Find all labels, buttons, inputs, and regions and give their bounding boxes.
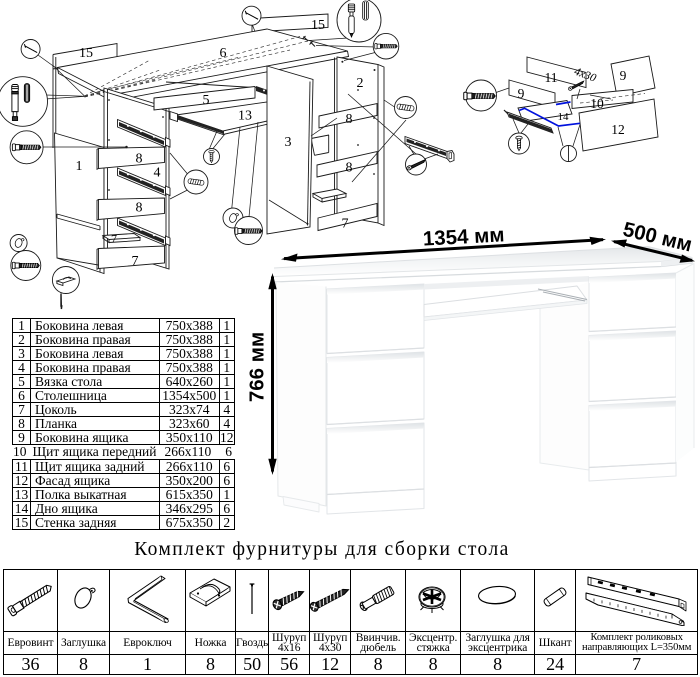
svg-text:6: 6 <box>220 46 227 61</box>
svg-text:11: 11 <box>545 70 558 85</box>
svg-text:8: 8 <box>136 152 143 167</box>
svg-text:10: 10 <box>590 96 604 111</box>
svg-text:7: 7 <box>132 254 139 269</box>
svg-text:8: 8 <box>346 161 353 176</box>
svg-text:14: 14 <box>558 111 570 123</box>
svg-text:1354 мм: 1354 мм <box>422 223 505 250</box>
svg-text:9: 9 <box>620 68 627 83</box>
svg-text:13: 13 <box>238 109 252 124</box>
svg-text:8: 8 <box>346 112 353 127</box>
svg-text:9: 9 <box>518 86 525 101</box>
svg-text:7: 7 <box>342 217 349 232</box>
svg-text:12: 12 <box>611 122 625 137</box>
svg-text:1: 1 <box>76 159 83 174</box>
svg-text:8: 8 <box>136 201 143 216</box>
svg-text:5: 5 <box>203 93 210 108</box>
svg-text:2: 2 <box>357 76 364 91</box>
svg-text:15: 15 <box>79 46 93 61</box>
svg-text:4: 4 <box>154 166 161 181</box>
svg-text:766 мм: 766 мм <box>246 332 269 402</box>
svg-text:15: 15 <box>311 18 325 33</box>
svg-text:7: 7 <box>111 232 117 246</box>
svg-text:3: 3 <box>285 135 292 150</box>
